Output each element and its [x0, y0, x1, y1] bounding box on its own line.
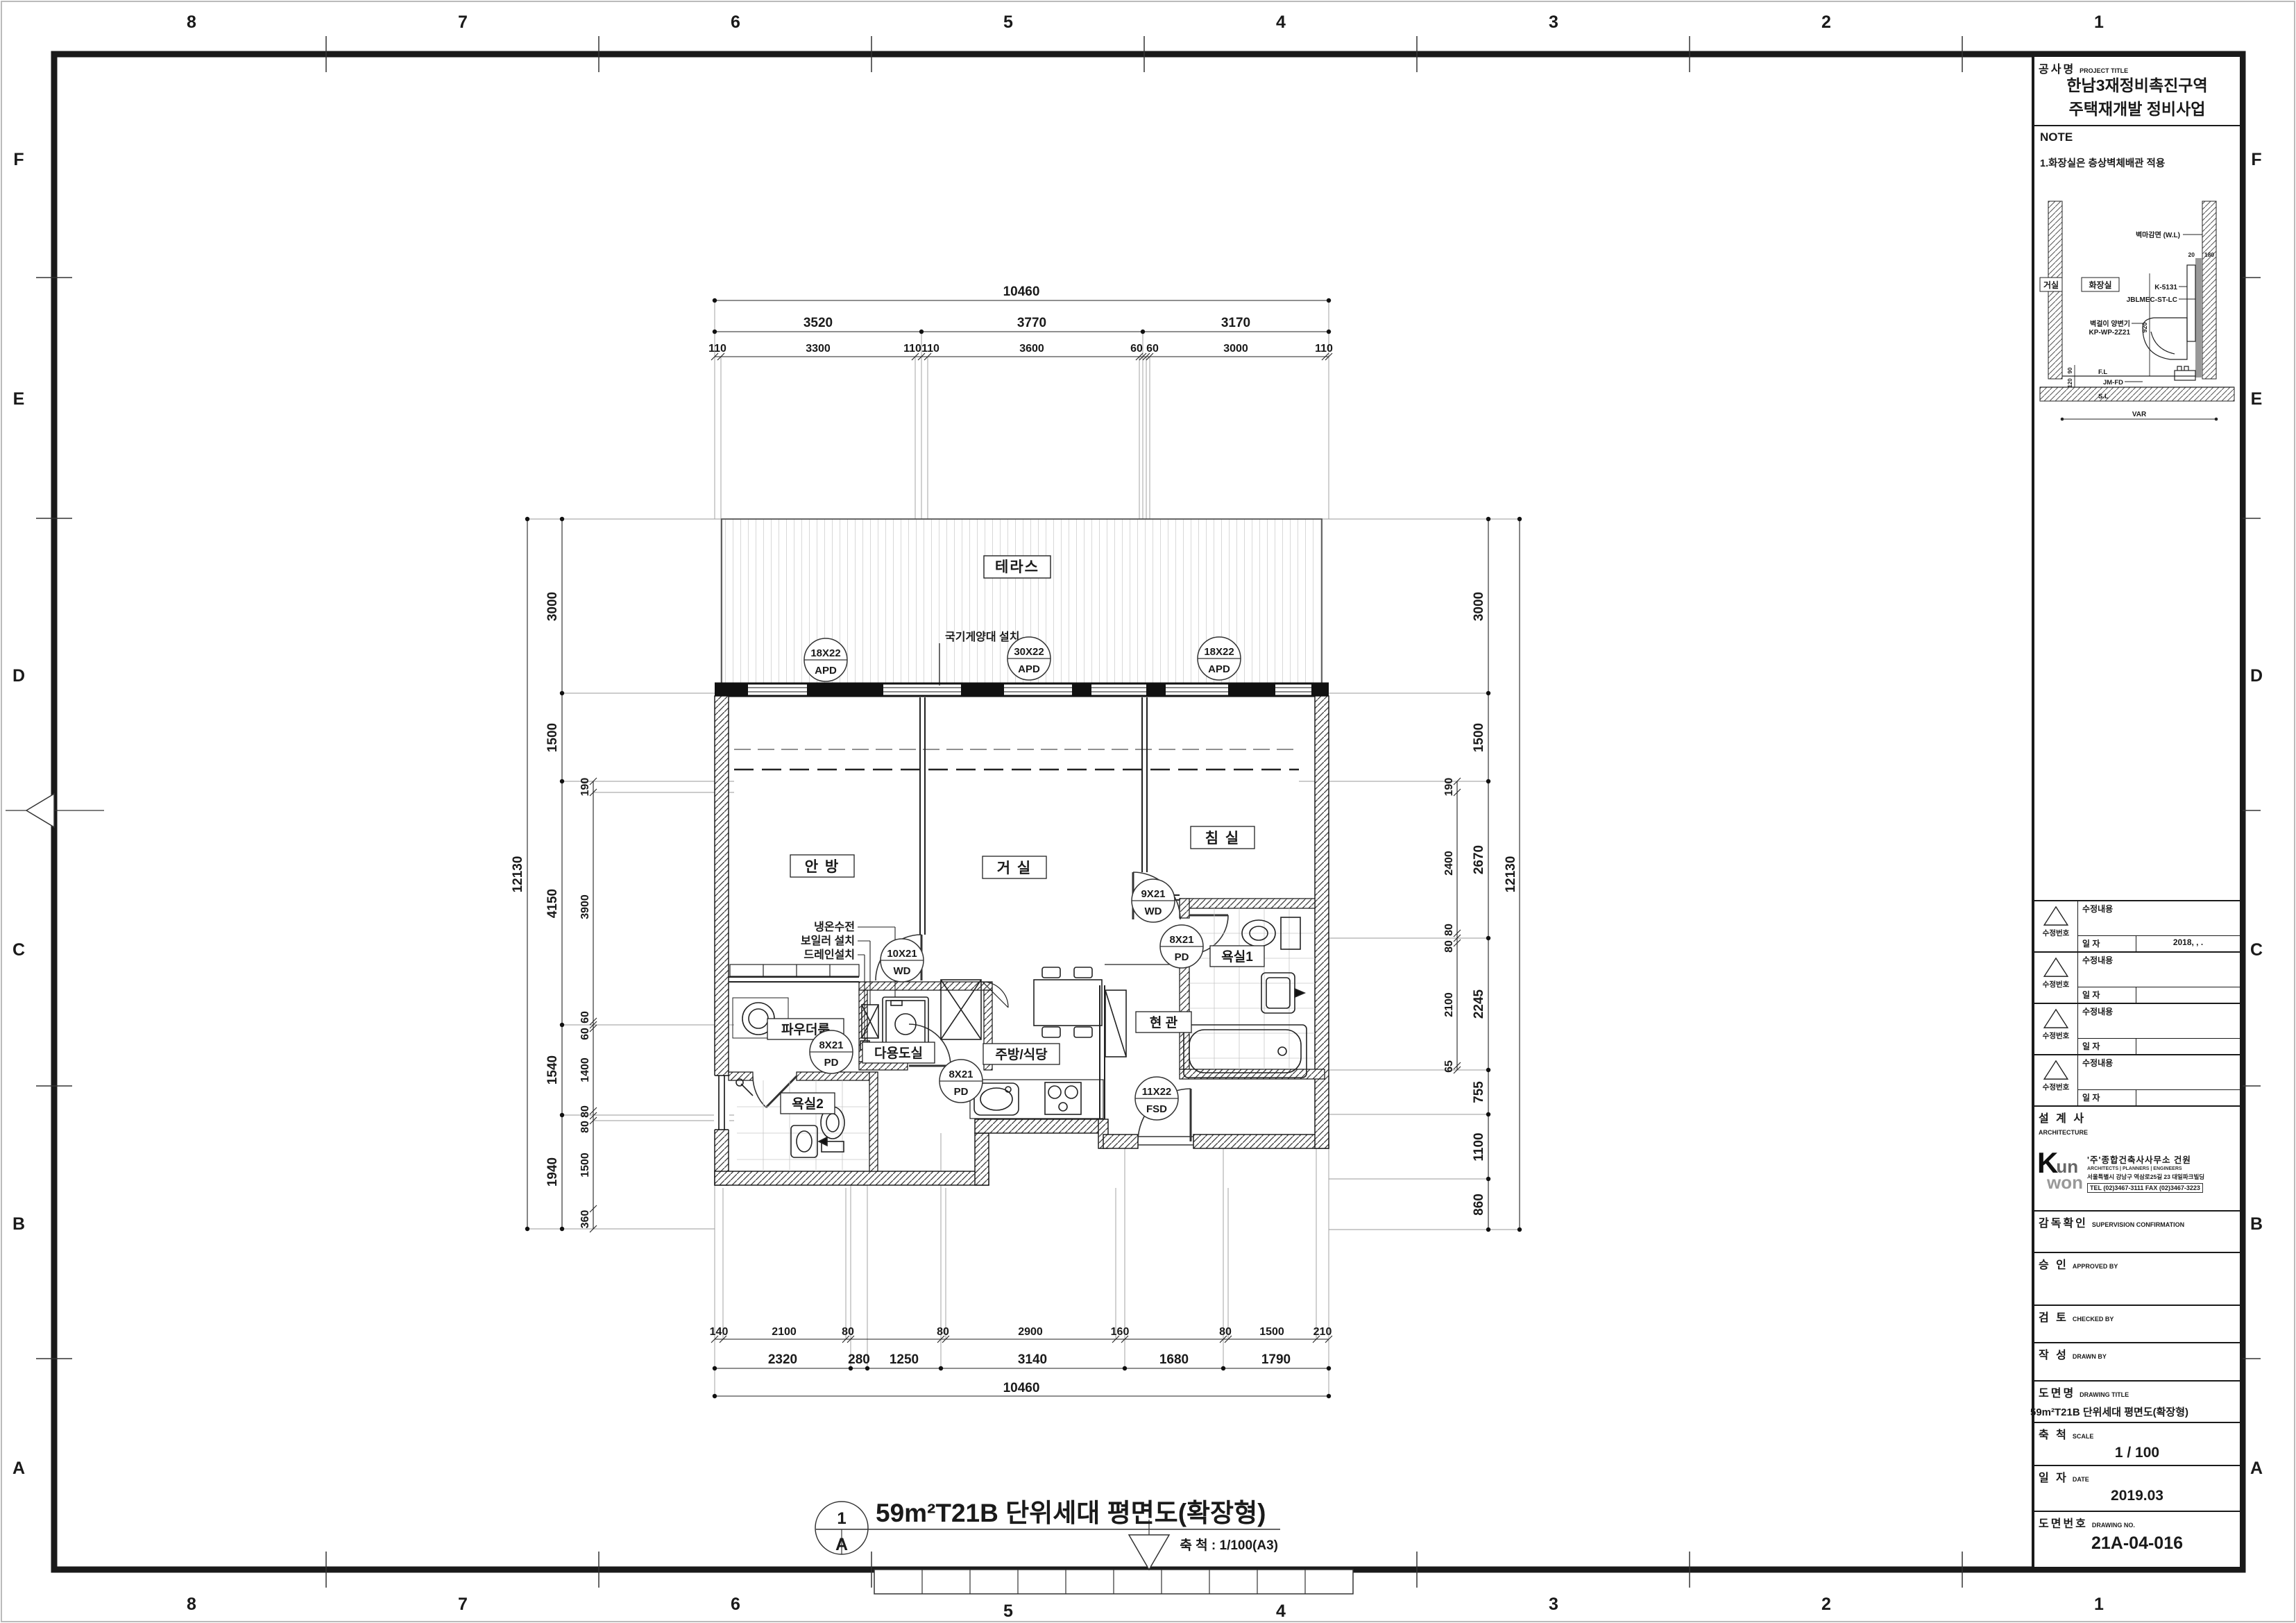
revision-triangle-icon	[2042, 1008, 2070, 1029]
window-tag: 18X22 APD	[1198, 637, 1241, 680]
checked-label: 검 토	[2039, 1312, 2068, 1324]
kunwon-logo: Kun won	[2037, 1154, 2087, 1191]
supervision-label-en: SUPERVISION CONFIRMATION	[2092, 1221, 2184, 1228]
view-title-text: 59m²T21B 단위세대 평면도(확장형)	[876, 1499, 1266, 1527]
kitchen-counter-icon	[970, 1080, 1103, 1119]
svg-text:280: 280	[848, 1352, 870, 1367]
firm-address: 서울특별시 강남구 역삼로25길 23 대일파크빌딩	[2087, 1173, 2237, 1181]
row-label: C	[2250, 940, 2263, 960]
project-name-line2: 주택재개발 정비사업	[2034, 97, 2240, 121]
window-tag: 18X22 APD	[804, 638, 847, 681]
svg-text:침 실: 침 실	[1205, 831, 1240, 847]
col-label: 4	[1276, 12, 1286, 32]
detail-model-1: K-5131	[2154, 284, 2177, 291]
svg-text:360: 360	[579, 1210, 591, 1229]
svg-text:18X22: 18X22	[810, 647, 840, 659]
revision-date-label: 일 자	[2078, 987, 2136, 1003]
scale-bar	[874, 1520, 1353, 1594]
svg-text:2100: 2100	[772, 1326, 797, 1338]
dimensions: 10460 3520 3770 3170 110 3300 110 110 36…	[511, 284, 1522, 1398]
approved-section: 승 인APPROVED BY	[2034, 1252, 2240, 1274]
drawn-label: 작 성	[2039, 1350, 2068, 1361]
row-label: B	[2250, 1214, 2263, 1234]
window-tag: 30X22 APD	[1007, 637, 1051, 680]
svg-text:30X22: 30X22	[1014, 646, 1044, 658]
svg-text:PD: PD	[824, 1057, 839, 1069]
drawing-title-value: 59m²T21B 단위세대 평면도(확장형)	[2030, 1404, 2236, 1419]
firm-type: ARCHITECTS | PLANNERS | ENGINEERS	[2087, 1166, 2237, 1171]
svg-text:190: 190	[579, 778, 591, 797]
svg-text:60: 60	[579, 1028, 591, 1040]
detail-toilet-2: KP-WP-2Z21	[2089, 329, 2131, 337]
approved-label-en: APPROVED BY	[2073, 1263, 2118, 1270]
revision-row-2: 수정번호 수정내용 일 자	[2034, 951, 2240, 1003]
col-label: 7	[458, 1595, 468, 1614]
col-label: 2	[1821, 1595, 1831, 1614]
col-label: 5	[1003, 12, 1013, 32]
svg-text:3520: 3520	[803, 316, 833, 330]
col-label: 3	[1549, 12, 1558, 32]
detail-dim-90: 90	[2067, 367, 2073, 373]
wardrobe-icon	[730, 965, 859, 976]
detail-drain-label: JM-FD	[2103, 379, 2123, 386]
detail-dim-20: 20	[2188, 251, 2195, 258]
svg-text:1250: 1250	[890, 1352, 919, 1367]
door-tag: 8X21 PD	[939, 1060, 983, 1103]
drawing-title-section: 도면명DRAWING TITLE 59m²T21B 단위세대 평면도(확장형)	[2034, 1380, 2240, 1421]
svg-text:110: 110	[1315, 343, 1333, 355]
revision-content-label: 수정내용	[2078, 901, 2240, 935]
drawing-no-label-en: DRAWING NO.	[2092, 1522, 2135, 1529]
annotation-boiler: 보일러 설치	[801, 935, 855, 947]
drawing-title-label-en: DRAWING TITLE	[2080, 1391, 2129, 1398]
svg-text:8X21: 8X21	[1169, 934, 1193, 946]
row-label: A	[12, 1459, 25, 1478]
svg-text:9X21: 9X21	[1141, 888, 1165, 900]
toilet-detail-drawing: 거실 화장실 벽마감면 (W.L) 20 180 K-5131 JBLMEC-S…	[2039, 196, 2236, 435]
row-label: D	[12, 666, 25, 686]
door-tag: 9X21 WD	[1132, 879, 1175, 922]
col-label: 8	[187, 12, 196, 32]
svg-text:10460: 10460	[1003, 1381, 1040, 1395]
washer-icon	[883, 997, 928, 1048]
revision-content-label: 수정내용	[2078, 1055, 2240, 1089]
revision-triangle-icon	[2042, 1060, 2070, 1080]
svg-text:WD: WD	[894, 965, 911, 977]
svg-text:WD: WD	[1145, 906, 1162, 917]
revision-date-value	[2136, 1090, 2240, 1105]
room-label-master: 안 방	[790, 855, 854, 877]
svg-text:다용도실: 다용도실	[874, 1046, 923, 1061]
revision-triangle-icon	[2042, 906, 2070, 926]
svg-text:10X21: 10X21	[887, 948, 917, 960]
shower-icon	[736, 1079, 753, 1096]
svg-text:2245: 2245	[1472, 989, 1486, 1019]
svg-text:거 실: 거 실	[997, 860, 1032, 876]
architect-label-en: ARCHITECTURE	[2039, 1129, 2088, 1136]
svg-text:8X21: 8X21	[949, 1069, 973, 1080]
checked-label-en: CHECKED BY	[2073, 1316, 2114, 1323]
svg-text:12130: 12130	[1504, 856, 1518, 893]
svg-text:80: 80	[1219, 1326, 1232, 1338]
revision-no-label: 수정번호	[2043, 1083, 2070, 1091]
partitions	[729, 697, 1180, 1119]
svg-text:110: 110	[708, 343, 726, 355]
view-title: 1 A 59m²T21B 단위세대 평면도(확장형) 축 척 : 1/100(A…	[815, 1499, 1280, 1554]
room-label-utility: 다용도실	[862, 1042, 935, 1063]
row-label: E	[13, 389, 25, 409]
sheet-border	[1, 1, 2295, 1622]
architect-firm: Kun won '주'종합건축사사무소 건원 ARCHITECTS | PLAN…	[2034, 1138, 2240, 1207]
detail-room-right: 화장실	[2089, 280, 2111, 290]
revision-date-label: 일 자	[2078, 1090, 2136, 1105]
pipe-chase	[2195, 258, 2202, 377]
door-tag: 11X22 FSD	[1135, 1077, 1178, 1120]
scale-value: 1 / 100	[2039, 1445, 2236, 1461]
svg-text:3600: 3600	[1019, 343, 1044, 355]
room-label-entrance: 현 관	[1136, 1012, 1191, 1033]
svg-text:2320: 2320	[768, 1352, 797, 1367]
svg-text:160: 160	[1111, 1326, 1130, 1338]
revision-no-label: 수정번호	[2043, 1032, 2070, 1040]
svg-text:65: 65	[1443, 1060, 1455, 1073]
supervision-section: 감독확인SUPERVISION CONFIRMATION	[2034, 1210, 2240, 1232]
revision-no-label: 수정번호	[2043, 929, 2070, 937]
svg-text:190: 190	[1443, 778, 1455, 797]
dashed-lines	[734, 749, 1299, 770]
svg-text:2900: 2900	[1018, 1326, 1043, 1338]
svg-text:60: 60	[1130, 343, 1143, 355]
dining-table-icon	[1034, 967, 1102, 1037]
revision-content-label: 수정내용	[2078, 953, 2240, 987]
svg-text:110: 110	[921, 343, 939, 355]
svg-text:755: 755	[1472, 1081, 1486, 1103]
svg-text:1940: 1940	[545, 1157, 560, 1187]
checked-section: 검 토CHECKED BY	[2034, 1305, 2240, 1327]
svg-text:주방/식당: 주방/식당	[995, 1047, 1048, 1062]
revision-date-value	[2136, 1039, 2240, 1054]
view-letter: A	[835, 1535, 848, 1554]
svg-text:안 방: 안 방	[805, 859, 840, 875]
drawn-label-en: DRAWN BY	[2073, 1353, 2107, 1360]
plan-drawing: 8 7 6 5 4 3 2 1 8 7 6 5 4 3 2 1 F E D C …	[0, 0, 2296, 1623]
wall-hung-toilet-icon	[2143, 265, 2195, 380]
row-label: F	[13, 150, 24, 169]
detail-dim-120: 120	[2067, 378, 2073, 388]
svg-text:80: 80	[1443, 924, 1455, 936]
col-label: 6	[731, 1595, 740, 1614]
architect-label: 설 계 사	[2039, 1113, 2086, 1125]
date-label: 일 자	[2039, 1472, 2068, 1484]
room-label-terrace: 테라스	[995, 559, 1039, 575]
room-label-living: 거 실	[983, 856, 1046, 878]
revision-row-1: 수정번호 수정내용 일 자 2018, , .	[2034, 900, 2240, 951]
svg-text:210: 210	[1313, 1326, 1332, 1338]
svg-text:3140: 3140	[1018, 1352, 1047, 1367]
detail-room-left: 거실	[2043, 280, 2059, 290]
svg-text:FSD: FSD	[1146, 1103, 1167, 1115]
detail-fl: F.L	[2098, 368, 2107, 376]
col-label: 7	[458, 12, 468, 32]
row-label: C	[12, 940, 25, 960]
drawing-sheet: 8 7 6 5 4 3 2 1 8 7 6 5 4 3 2 1 F E D C …	[0, 0, 2296, 1623]
date-section: 일 자DATE 2019.03	[2034, 1465, 2240, 1506]
title-block: 공사명PROJECT TITLE 한남3재정비촉진구역 주택재개발 정비사업 N…	[2032, 54, 2243, 1570]
svg-text:140: 140	[710, 1326, 729, 1338]
svg-text:PD: PD	[954, 1086, 969, 1098]
svg-text:3170: 3170	[1221, 316, 1250, 330]
svg-text:3000: 3000	[545, 592, 560, 621]
project-name-line1: 한남3재정비촉진구역	[2034, 74, 2240, 97]
svg-text:11X22: 11X22	[1142, 1086, 1172, 1098]
svg-text:3000: 3000	[1223, 343, 1248, 355]
view-number: 1	[837, 1509, 846, 1528]
door-tag: 8X21 PD	[1160, 925, 1203, 968]
svg-text:110: 110	[903, 343, 921, 355]
svg-text:2400: 2400	[1443, 851, 1455, 876]
annotation-cold-hot: 냉온수전	[814, 921, 855, 933]
room-label-kitchen: 주방/식당	[983, 1044, 1060, 1064]
svg-text:1790: 1790	[1261, 1352, 1291, 1367]
svg-text:80: 80	[937, 1326, 949, 1338]
extension-lines	[527, 300, 1520, 1396]
approved-label: 승 인	[2039, 1259, 2068, 1271]
drawing-no-value: 21A-04-016	[2039, 1533, 2236, 1554]
svg-text:1400: 1400	[579, 1057, 591, 1082]
row-label: F	[2251, 150, 2261, 169]
drawing-no-section: 도면번호DRAWING NO. 21A-04-016	[2034, 1511, 2240, 1556]
svg-text:80: 80	[842, 1326, 854, 1338]
scale-section: 축 척SCALE 1 / 100	[2034, 1422, 2240, 1463]
col-label: 3	[1549, 1595, 1558, 1614]
revision-no-label: 수정번호	[2043, 980, 2070, 989]
detail-wall-finish: 벽마감면 (W.L)	[2136, 230, 2180, 239]
svg-text:1500: 1500	[1472, 723, 1486, 752]
architect-section: 설 계 사 ARCHITECTURE	[2034, 1105, 2240, 1140]
svg-text:8X21: 8X21	[819, 1039, 843, 1051]
revision-date-value: 2018, , .	[2136, 936, 2240, 951]
detail-sl: S.L	[2098, 393, 2109, 400]
svg-text:1500: 1500	[545, 723, 560, 752]
col-label: 4	[1276, 1601, 1286, 1621]
annotation-drain: 드레인설치	[803, 949, 855, 961]
svg-text:80: 80	[579, 1121, 591, 1133]
shoe-cabinet-icon	[1105, 990, 1126, 1057]
firm-name: '주'종합건축사사무소 건원	[2087, 1153, 2237, 1166]
col-label: 1	[2094, 1595, 2104, 1614]
col-label: 8	[187, 1595, 196, 1614]
note-text: 1.화장실은 층상벽체배관 적용	[2040, 155, 2165, 170]
svg-text:3300: 3300	[806, 343, 831, 355]
revision-triangle-icon	[2042, 957, 2070, 978]
view-scale-text: 축 척 : 1/100(A3)	[1180, 1538, 1278, 1553]
door-tag: 8X21 PD	[810, 1030, 853, 1073]
svg-text:4150: 4150	[545, 889, 560, 918]
svg-text:APD: APD	[1208, 663, 1230, 675]
grid-ticks	[36, 36, 2261, 1588]
svg-text:80: 80	[579, 1105, 591, 1118]
door-tag: 10X21 WD	[881, 939, 924, 982]
col-label: 2	[1821, 12, 1831, 32]
svg-text:욕실2: 욕실2	[792, 1096, 824, 1112]
svg-text:1100: 1100	[1472, 1132, 1486, 1161]
col-label: 1	[2094, 12, 2104, 32]
scale-label: 축 척	[2039, 1429, 2068, 1441]
svg-text:3000: 3000	[1472, 592, 1486, 621]
revision-date-label: 일 자	[2078, 936, 2136, 951]
detail-model-2: JBLMEC-ST-LC	[2127, 296, 2177, 304]
svg-text:12130: 12130	[511, 856, 525, 893]
drawing-title-label: 도면명	[2039, 1388, 2075, 1400]
center-marker-icon	[1129, 1535, 1169, 1570]
drawing-no-label: 도면번호	[2039, 1518, 2088, 1530]
room-label-bath2: 욕실2	[781, 1093, 835, 1114]
dimension-dots	[525, 298, 1522, 1398]
project-name: 한남3재정비촉진구역 주택재개발 정비사업	[2034, 74, 2240, 121]
svg-text:60: 60	[1146, 343, 1159, 355]
detail-dim-var: VAR	[2132, 411, 2147, 418]
svg-text:2100: 2100	[1443, 992, 1455, 1017]
flagpole-annotation: 국기게양대 설치	[945, 630, 1020, 643]
row-label: D	[2250, 666, 2263, 686]
drawn-section: 작 성DRAWN BY	[2034, 1342, 2240, 1364]
svg-text:10460: 10460	[1003, 284, 1040, 299]
svg-text:2670: 2670	[1472, 845, 1486, 874]
svg-text:1500: 1500	[1259, 1326, 1284, 1338]
svg-text:18X22: 18X22	[1204, 646, 1234, 658]
revision-row-4: 수정번호 수정내용 일 자	[2034, 1054, 2240, 1105]
svg-text:3770: 3770	[1017, 316, 1046, 330]
svg-text:80: 80	[1443, 940, 1455, 953]
svg-text:현 관: 현 관	[1150, 1015, 1178, 1030]
col-label: 5	[1003, 1601, 1013, 1621]
date-value: 2019.03	[2039, 1488, 2236, 1504]
firm-phone: TEL (02)3467-3111 FAX (02)3467-3223	[2087, 1183, 2203, 1193]
svg-text:1500: 1500	[579, 1153, 591, 1178]
row-label: B	[12, 1214, 25, 1234]
svg-text:1540: 1540	[545, 1055, 560, 1085]
svg-text:PD: PD	[1175, 951, 1189, 963]
sink-icon	[1261, 973, 1304, 1013]
revision-content-label: 수정내용	[2078, 1004, 2240, 1038]
room-label-bedroom: 침 실	[1191, 826, 1255, 849]
detail-toilet-1: 벽걸이 양변기	[2090, 319, 2130, 328]
col-label: 6	[731, 12, 740, 32]
detail-dim-920: 920	[2141, 322, 2148, 332]
svg-text:860: 860	[1472, 1193, 1486, 1216]
svg-text:60: 60	[579, 1011, 591, 1023]
note-label: NOTE	[2040, 130, 2073, 144]
scale-label-en: SCALE	[2073, 1433, 2094, 1440]
svg-text:1680: 1680	[1159, 1352, 1189, 1367]
svg-text:3900: 3900	[579, 894, 591, 919]
supervision-label: 감독확인	[2039, 1218, 2088, 1230]
revision-row-3: 수정번호 수정내용 일 자	[2034, 1003, 2240, 1054]
svg-text:욕실1: 욕실1	[1221, 949, 1253, 965]
svg-text:APD: APD	[815, 665, 837, 677]
room-label-bath1: 욕실1	[1210, 946, 1264, 967]
revision-date-value	[2136, 987, 2240, 1003]
grid-labels: 8 7 6 5 4 3 2 1 8 7 6 5 4 3 2 1 F E D C …	[12, 12, 2263, 1621]
detail-dim-180: 180	[2204, 251, 2214, 258]
row-label: A	[2250, 1459, 2263, 1478]
svg-text:APD: APD	[1018, 663, 1040, 675]
row-label: E	[2251, 389, 2263, 409]
date-label-en: DATE	[2073, 1476, 2089, 1483]
revision-date-label: 일 자	[2078, 1039, 2136, 1054]
